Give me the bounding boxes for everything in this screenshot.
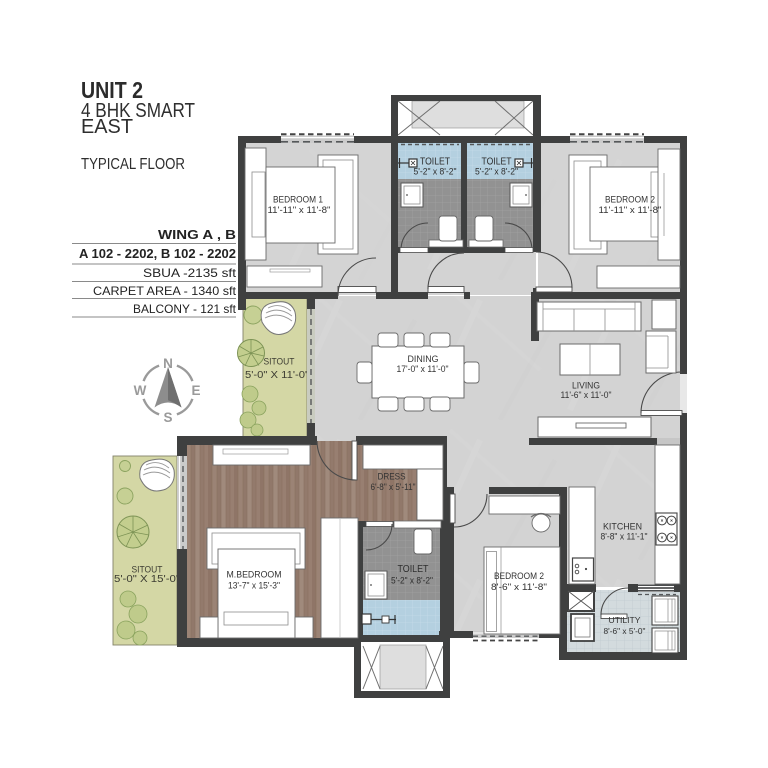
svg-text:TYPICAL FLOOR: TYPICAL FLOOR: [81, 156, 185, 173]
svg-text:SBUA -2135 sft: SBUA -2135 sft: [143, 266, 237, 280]
svg-text:11'-6" x 11'-0": 11'-6" x 11'-0": [561, 390, 612, 400]
svg-text:5'-2" x 8'-2": 5'-2" x 8'-2": [475, 167, 518, 177]
svg-text:11'-11" x 11'-8": 11'-11" x 11'-8": [268, 205, 331, 215]
svg-text:EAST: EAST: [81, 116, 133, 138]
svg-text:M.BEDROOM: M.BEDROOM: [227, 570, 282, 580]
svg-text:6'-8" x 5'-11": 6'-8" x 5'-11": [371, 482, 416, 492]
svg-text:BEDROOM 2: BEDROOM 2: [494, 571, 544, 581]
svg-text:DRESS: DRESS: [378, 472, 406, 482]
svg-text:CARPET AREA - 1340 sft: CARPET AREA - 1340 sft: [93, 284, 237, 298]
svg-text:WING A , B: WING A , B: [158, 228, 236, 242]
svg-text:8'-6" x 11'-8": 8'-6" x 11'-8": [491, 582, 547, 592]
svg-text:BEDROOM 1: BEDROOM 1: [273, 195, 323, 205]
svg-text:UTILITY: UTILITY: [609, 615, 641, 625]
svg-text:KITCHEN: KITCHEN: [603, 522, 642, 532]
svg-text:BEDROOM 2: BEDROOM 2: [605, 195, 655, 205]
svg-text:DINING: DINING: [408, 354, 439, 364]
svg-text:TOILET: TOILET: [398, 564, 429, 575]
svg-text:8'-6" x 5'-0": 8'-6" x 5'-0": [604, 626, 646, 636]
svg-text:W: W: [134, 383, 147, 398]
svg-text:S: S: [163, 410, 172, 425]
svg-text:11'-11" x 11'-8": 11'-11" x 11'-8": [599, 205, 662, 215]
svg-text:BALCONY - 121 sft: BALCONY - 121 sft: [133, 302, 237, 316]
svg-text:5'-2" x 8'-2": 5'-2" x 8'-2": [391, 576, 433, 586]
svg-text:5'-2" x 8'-2": 5'-2" x 8'-2": [414, 167, 457, 177]
svg-text:5'-0" X 11'-0": 5'-0" X 11'-0": [245, 370, 310, 381]
svg-text:13'-7" x 15'-3": 13'-7" x 15'-3": [228, 581, 280, 591]
svg-text:5'-0" X 15'-0": 5'-0" X 15'-0": [114, 574, 181, 585]
svg-text:LIVING: LIVING: [572, 381, 600, 391]
svg-text:E: E: [191, 383, 200, 398]
svg-text:SITOUT: SITOUT: [264, 357, 295, 368]
svg-text:8'-8" x 11'-1": 8'-8" x 11'-1": [601, 532, 648, 542]
svg-text:A 102 - 2202, B 102 - 2202: A 102 - 2202, B 102 - 2202: [79, 247, 236, 261]
svg-text:17'-0" x 11'-0": 17'-0" x 11'-0": [397, 364, 449, 374]
